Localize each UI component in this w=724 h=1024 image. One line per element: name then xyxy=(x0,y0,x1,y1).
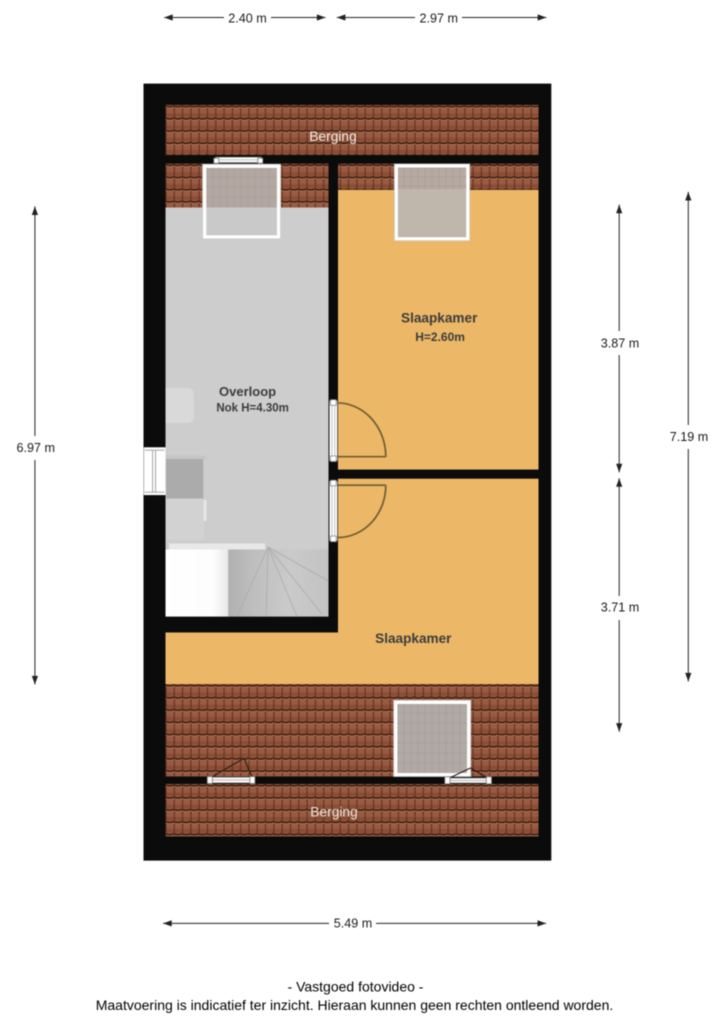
svg-text:5.49 m: 5.49 m xyxy=(334,917,373,931)
svg-text:6.97 m: 6.97 m xyxy=(16,441,55,455)
svg-text:- Vastgoed fotovideo -: - Vastgoed fotovideo - xyxy=(288,978,424,994)
svg-text:3.87 m: 3.87 m xyxy=(601,336,640,350)
svg-text:Slaapkamer: Slaapkamer xyxy=(401,310,478,325)
svg-text:Overloop: Overloop xyxy=(219,384,276,399)
svg-text:3.71 m: 3.71 m xyxy=(601,601,640,615)
svg-text:2.40 m: 2.40 m xyxy=(228,11,267,25)
svg-text:Berging: Berging xyxy=(309,129,357,144)
svg-text:Maatvoering is indicatief ter: Maatvoering is indicatief ter inzicht. H… xyxy=(96,997,614,1013)
svg-text:Slaapkamer: Slaapkamer xyxy=(375,631,452,646)
svg-text:Berging: Berging xyxy=(310,805,358,820)
svg-text:Nok H=4.30m: Nok H=4.30m xyxy=(216,403,289,415)
svg-text:7.19 m: 7.19 m xyxy=(670,430,709,444)
svg-text:H=2.60m: H=2.60m xyxy=(415,330,465,344)
svg-text:2.97 m: 2.97 m xyxy=(420,11,459,25)
